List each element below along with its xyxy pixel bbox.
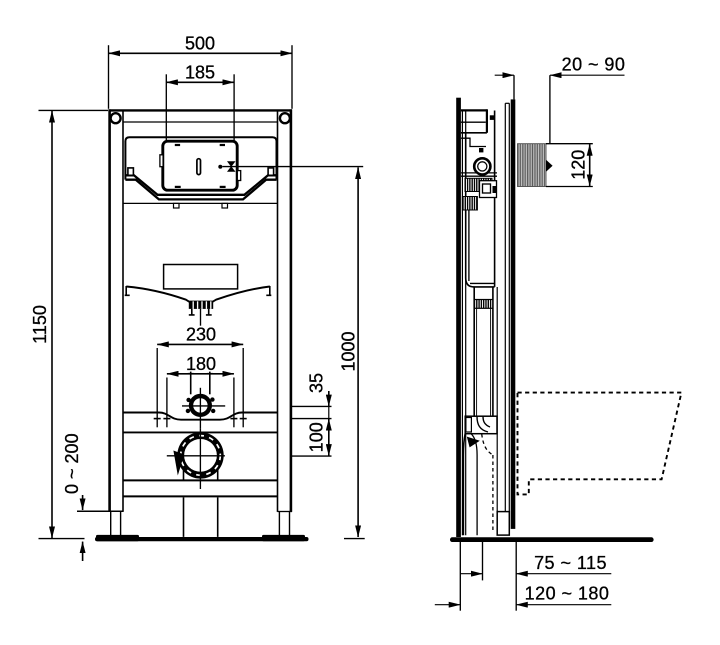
svg-text:20 ~ 90: 20 ~ 90 bbox=[562, 54, 626, 74]
svg-text:75 ~ 115: 75 ~ 115 bbox=[534, 553, 607, 573]
svg-text:100: 100 bbox=[307, 422, 327, 452]
svg-text:500: 500 bbox=[185, 33, 215, 53]
svg-text:0 ~ 200: 0 ~ 200 bbox=[62, 433, 82, 494]
svg-text:120 ~ 180: 120 ~ 180 bbox=[525, 584, 610, 604]
svg-text:180: 180 bbox=[186, 354, 216, 374]
svg-text:1150: 1150 bbox=[30, 305, 50, 344]
svg-text:120: 120 bbox=[568, 150, 588, 180]
svg-text:1000: 1000 bbox=[339, 331, 359, 371]
svg-text:185: 185 bbox=[185, 63, 215, 83]
svg-text:35: 35 bbox=[307, 373, 327, 393]
svg-text:230: 230 bbox=[186, 324, 216, 344]
